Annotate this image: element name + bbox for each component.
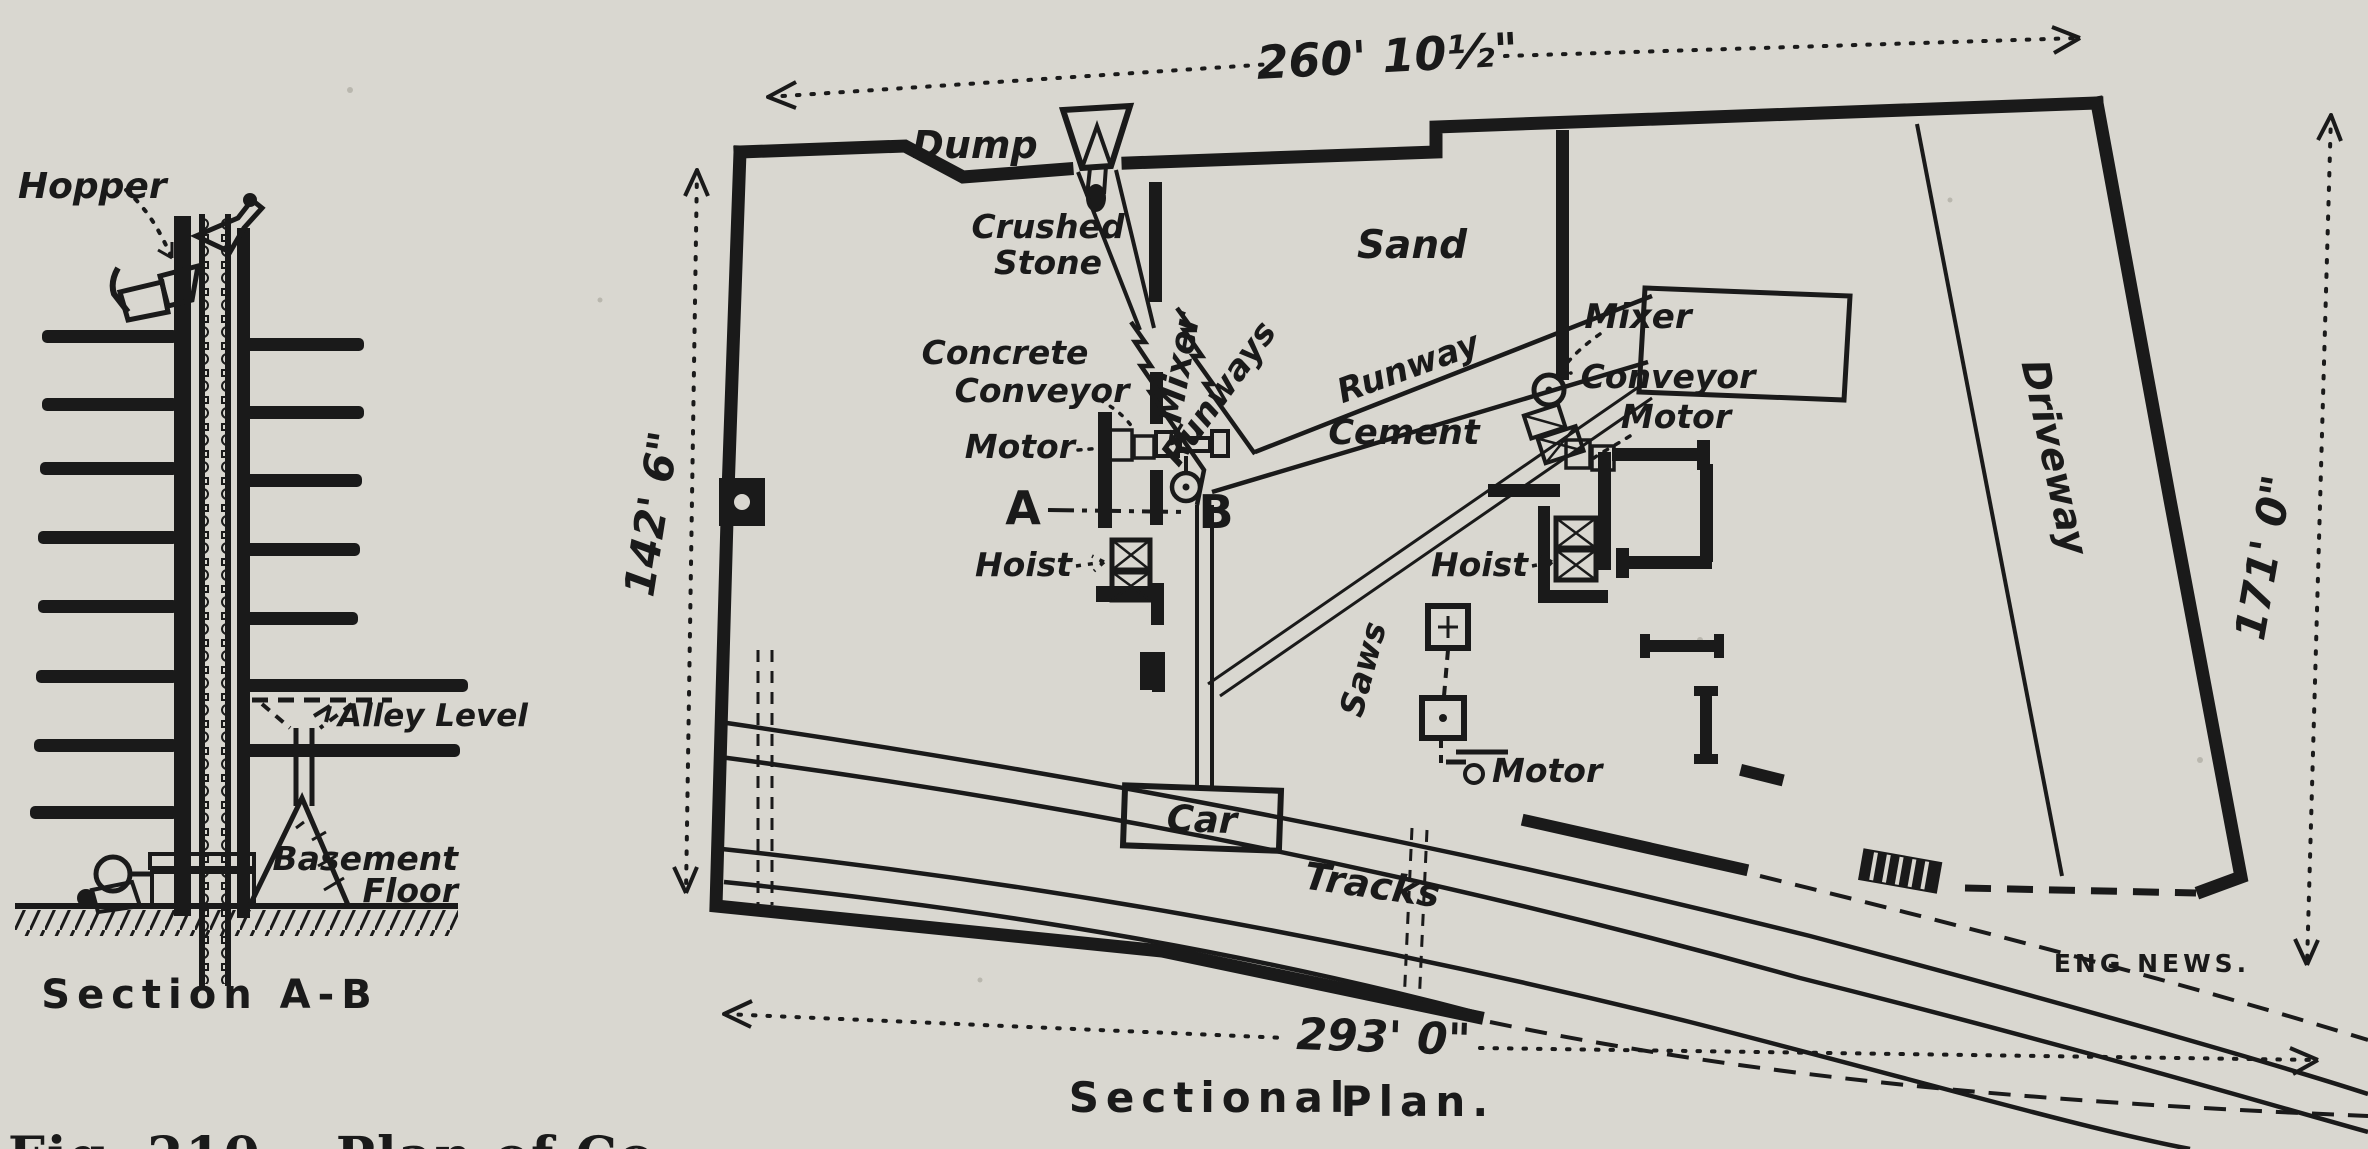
mixer-right-label: Mixer: [1584, 297, 1693, 337]
point-a-label: A: [1005, 481, 1041, 535]
motor-left-label: Motor: [965, 427, 1077, 466]
saws-motor-label: Motor: [1492, 751, 1604, 790]
sand-label: Sand: [1357, 223, 1468, 268]
drawing-canvas: Hopper Alley Level Basement Floor S: [0, 0, 2368, 1149]
dump-label: Dump: [912, 123, 1037, 167]
plan-title-2: Plan.: [1341, 1077, 1495, 1126]
sand-bin-wall: [1556, 130, 1569, 380]
hoist-right-label: Hoist: [1431, 545, 1529, 584]
dim-bottom-label: 293' 0": [1296, 1009, 1472, 1066]
alley-level-label: Alley Level: [335, 698, 528, 734]
cement-label: Cement: [1328, 413, 1481, 453]
wall-door-block: [719, 478, 765, 526]
figure-caption-cropped: Fig. 210.—Plan of Co: [8, 1126, 656, 1149]
scanned-engineering-drawing: Hopper Alley Level Basement Floor S: [0, 0, 2368, 1149]
hopper-label: Hopper: [18, 166, 169, 207]
conveyor-motor-label-2: Motor: [1621, 397, 1733, 436]
hoist-left-label: Hoist: [975, 545, 1073, 584]
basement-floor-label-2: Floor: [363, 871, 460, 910]
section-line-ab: [1048, 510, 1188, 512]
ground-hatch: [15, 910, 458, 936]
plan-title-1: Sectional: [1069, 1073, 1352, 1122]
point-b-label: B: [1198, 485, 1233, 539]
crushed-stone-label-2: Stone: [994, 243, 1102, 282]
crushed-stone-label-1: Crushed: [971, 207, 1125, 246]
conveyor-motor-label-1: Conveyor: [1581, 357, 1757, 396]
section-ab-title: Section A-B: [41, 972, 378, 1018]
concrete-conveyor-label-2: Conveyor: [955, 371, 1131, 410]
eng-news-credit: ENG NEWS.: [2054, 949, 2250, 978]
concrete-conveyor-label-1: Concrete: [922, 333, 1089, 372]
